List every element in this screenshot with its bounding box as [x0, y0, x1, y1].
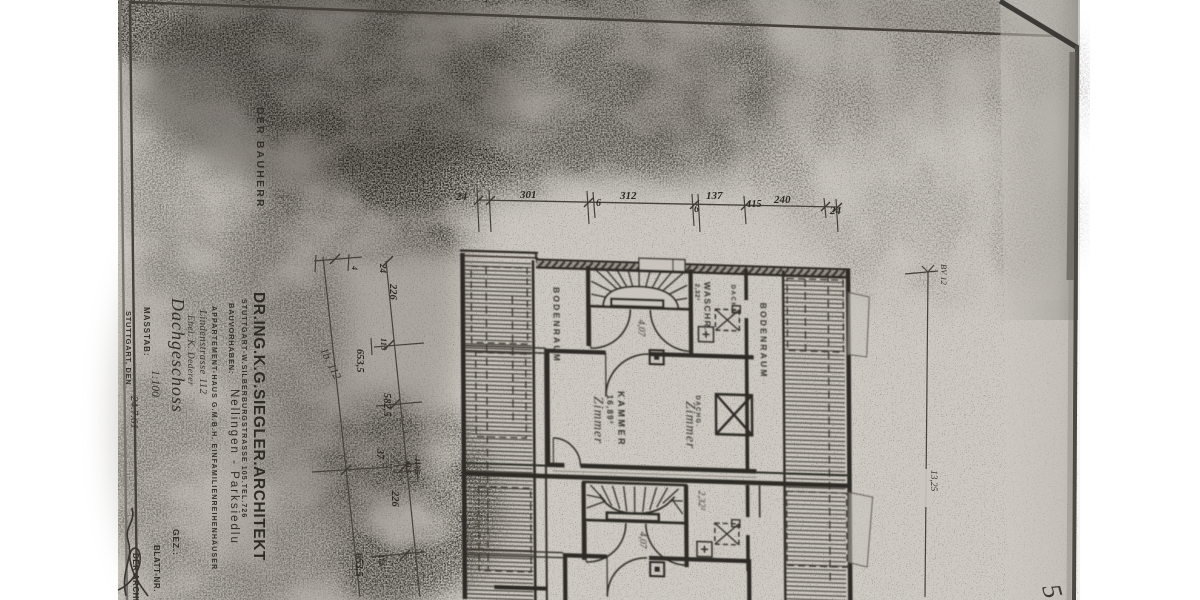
svg-text:Zimmer: Zimmer: [683, 401, 698, 449]
svg-text:BODENRAUM: BODENRAUM: [551, 287, 562, 363]
svg-text:113,5: 113,5: [413, 458, 422, 475]
svg-text:240: 240: [773, 194, 791, 206]
svg-text:312: 312: [619, 190, 637, 202]
svg-text:115: 115: [379, 338, 389, 351]
svg-text:Nellingen - Parksiedlu: Nellingen - Parksiedlu: [228, 389, 240, 545]
svg-text:301: 301: [519, 189, 537, 201]
svg-text:BODENRAUM: BODENRAUM: [758, 303, 769, 379]
svg-text:DR.ING.K.G.SIEGLER.ARCHITEKT: DR.ING.K.G.SIEGLER.ARCHITEKT: [250, 292, 267, 561]
svg-text:2,32²: 2,32²: [696, 490, 706, 510]
svg-text:13,25: 13,25: [928, 470, 938, 492]
svg-text:2,32²: 2,32²: [693, 283, 700, 301]
svg-text:Zimmer: Zimmer: [591, 396, 606, 444]
svg-text:653,5: 653,5: [353, 553, 364, 577]
svg-text:24: 24: [378, 263, 388, 274]
svg-text:GEZ.:: GEZ.:: [171, 529, 181, 556]
svg-text:41,5: 41,5: [404, 460, 412, 474]
svg-text:WASCHR.: WASCHR.: [702, 282, 712, 332]
svg-text:37: 37: [374, 448, 385, 460]
svg-text:24: 24: [829, 205, 842, 217]
svg-text:DER BAUHERR: DER BAUHERR: [254, 107, 266, 209]
svg-text:24.7.61: 24.7.61: [128, 396, 140, 429]
svg-text:KAMMER: KAMMER: [616, 391, 626, 447]
svg-text:Dachgeschoss: Dachgeschoss: [168, 297, 188, 413]
svg-text:226: 226: [389, 490, 400, 508]
svg-text:4,07: 4,07: [637, 532, 647, 550]
svg-text:115: 115: [747, 199, 761, 210]
svg-text:BV 12: BV 12: [939, 264, 949, 286]
svg-text:6: 6: [694, 204, 699, 215]
svg-text:137: 137: [706, 190, 723, 202]
svg-text:BAUVORHABEN:: BAUVORHABEN:: [227, 303, 236, 374]
svg-text:24: 24: [455, 191, 468, 203]
svg-text:1:100: 1:100: [149, 370, 161, 397]
svg-text:STUTTGART, DEN: STUTTGART, DEN: [124, 311, 133, 385]
svg-text:653,5: 653,5: [354, 349, 365, 373]
svg-text:4: 4: [350, 265, 359, 270]
svg-text:BLATT-NR.: BLATT-NR.: [152, 545, 161, 592]
svg-text:APPARTEMENT-HAUS G.M.B.H. EINF: APPARTEMENT-HAUS G.M.B.H. EINFAMILIENREI…: [210, 306, 218, 570]
svg-text:6: 6: [596, 198, 601, 209]
svg-text:582,5: 582,5: [381, 393, 392, 417]
svg-text:226: 226: [387, 283, 398, 301]
svg-text:115: 115: [377, 554, 387, 567]
svg-text:STUTTGART-W.SILBERBURGSTRASSE: STUTTGART-W.SILBERBURGSTRASSE 105.TEL.72…: [240, 299, 247, 518]
svg-text:4,07: 4,07: [635, 320, 645, 338]
svg-text:Lindenstrasse 112: Lindenstrasse 112: [197, 309, 208, 395]
svg-text:DACHS.: DACHS.: [729, 285, 735, 318]
svg-text:MASSTAB:: MASSTAB:: [142, 307, 151, 357]
